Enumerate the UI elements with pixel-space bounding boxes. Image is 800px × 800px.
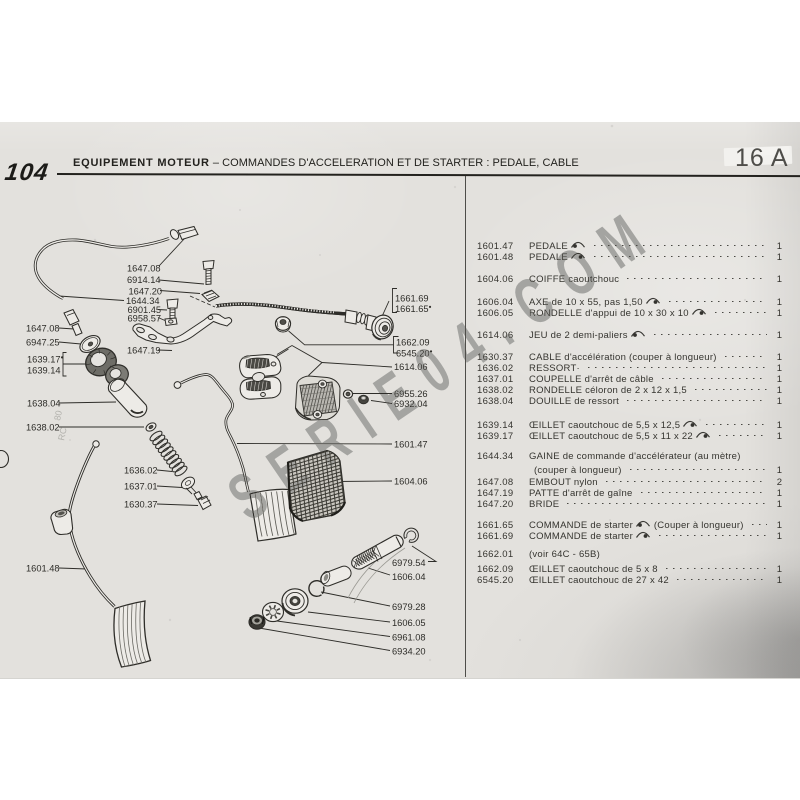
- svg-text:1604.06: 1604.06: [394, 477, 428, 487]
- svg-text:1647.20: 1647.20: [129, 287, 163, 297]
- svg-text:6947.25: 6947.25: [26, 338, 60, 348]
- svg-text:1638.02: 1638.02: [26, 423, 60, 433]
- svg-text:1647.08: 1647.08: [26, 324, 60, 334]
- svg-text:1606.05: 1606.05: [392, 618, 426, 628]
- svg-text:6958.57: 6958.57: [128, 314, 162, 324]
- svg-text:1639.14: 1639.14: [27, 366, 61, 376]
- svg-text:80: 80: [52, 410, 64, 422]
- svg-text:1661.65•: 1661.65•: [395, 303, 432, 315]
- svg-text:6914.14: 6914.14: [127, 275, 161, 285]
- svg-text:1639.17•: 1639.17•: [27, 353, 64, 365]
- svg-text:1647.19: 1647.19: [127, 346, 161, 356]
- svg-text:6979.54: 6979.54: [392, 558, 426, 568]
- svg-text:1647.08: 1647.08: [127, 264, 161, 274]
- svg-text:RC: RC: [56, 426, 69, 441]
- svg-text:1630.37: 1630.37: [124, 500, 158, 510]
- svg-text:1601.48: 1601.48: [26, 564, 60, 574]
- svg-text:6961.08: 6961.08: [392, 633, 426, 643]
- svg-text:6979.28: 6979.28: [392, 602, 426, 612]
- svg-text:1601.47: 1601.47: [394, 440, 428, 450]
- svg-text:1661.69: 1661.69: [395, 294, 429, 304]
- svg-text:1636.02: 1636.02: [124, 466, 158, 476]
- svg-text:1638.04: 1638.04: [27, 399, 61, 409]
- svg-text:1637.01: 1637.01: [124, 482, 158, 492]
- svg-text:6934.20: 6934.20: [392, 647, 426, 657]
- svg-text:1606.04: 1606.04: [392, 572, 426, 582]
